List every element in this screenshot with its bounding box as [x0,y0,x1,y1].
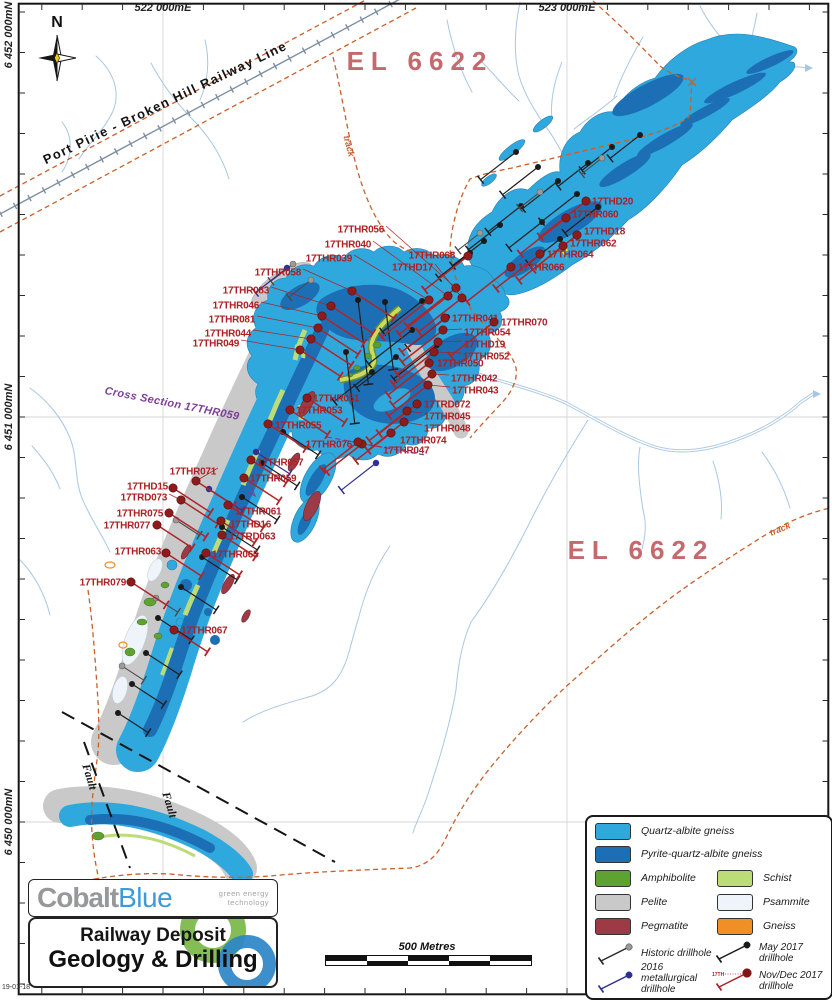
drillhole-label: 17THD15 [127,482,169,493]
novdec-drillhole-dot [348,287,356,295]
novdec-drillhole-dot [439,326,447,334]
legend-label-schist: Schist [763,873,792,885]
novdec-drillhole-trace-tick [325,430,330,438]
drillhole-label: 17THR051 [313,394,360,405]
drillhole-label: 17THR064 [547,250,594,261]
may2017-drillhole-dot [539,219,545,225]
legend-swatch-psammite [717,894,753,911]
may2017-drillhole-dot [155,615,161,621]
novdec-drillhole-dot [434,338,442,346]
may2017-drillhole-trace [357,357,396,388]
brand-tagline: green energy technology [219,889,269,908]
historic-drillhole-trace [176,520,199,535]
drillhole-label: 17THR059 [250,474,297,485]
novdec-drillhole-trace [331,306,373,333]
may2017-drillhole-trace [118,713,148,733]
may2017-drillhole-dot [574,191,580,197]
drillhole-leader [253,330,311,339]
legend-sym-dot [744,942,750,948]
met2016-drillhole-trace-tick [338,486,344,494]
drillhole-label: 17THR049 [193,339,240,350]
may2017-drillhole-trace-tick [607,154,613,162]
drillhole-leader [257,316,318,328]
drillhole-label: 17THR068 [409,251,456,262]
novdec-drillhole-trace-tick [190,544,195,552]
brand-blue: Blue [118,884,172,912]
novdec-drillhole-dot [582,197,590,205]
legend-symbol-historic-drillhole [593,941,637,967]
legend-sym-tick [599,958,604,965]
may2017-drillhole-dot [178,584,184,590]
novdec-drillhole-trace-tick [386,412,392,420]
may2017-drillhole-trace-tick [506,244,512,252]
drillhole-label: 17THD16 [230,520,272,531]
novdec-drillhole-dot [428,370,436,378]
may2017-drillhole-trace [488,206,521,232]
may2017-drillhole-trace-tick [363,384,373,385]
drillhole-label: 17THR054 [464,328,511,339]
novdec-drillhole-trace-tick [370,329,375,337]
novdec-drillhole-dot [177,496,185,504]
novdec-drillhole-dot [165,509,173,517]
drillhole-label: 17THR062 [570,239,617,250]
legend-label-pyrite: Pyrite-quartz-albite gneiss [641,849,762,861]
may2017-drillhole-dot [115,710,121,716]
may2017-drillhole-dot [585,160,591,166]
met2016-drillhole-dot [253,449,259,455]
drillhole-label: 17THR042 [451,374,498,385]
novdec-drillhole-dot [240,474,248,482]
drillhole-label: 17THR079 [80,578,127,589]
may2017-drillhole-dot [609,144,615,150]
may2017-drillhole-dot [481,238,487,244]
may2017-drillhole-dot [355,297,361,303]
may2017-drillhole-trace [146,653,180,675]
may2017-drillhole-dot [393,354,399,360]
may2017-drillhole-dot [637,132,643,138]
legend-sym-line [601,948,627,961]
novdec-drillhole-dot [202,549,210,557]
novdec-drillhole-dot [441,314,449,322]
north-arrow-label: N [48,14,66,32]
drillhole-leader [271,287,331,306]
legend-swatch-gneiss [717,918,753,935]
novdec-drillhole-dot [318,312,326,320]
may2017-drillhole-dot [129,681,135,687]
northing-label-6451000: 6 451 000mN [3,373,15,461]
novdec-drillhole-dot [490,318,498,326]
legend-swatch-pelite [595,894,631,911]
novdec-drillhole-dot [327,302,335,310]
novdec-drillhole-dot [170,626,178,634]
drillhole-label: 17THR060 [572,210,619,221]
historic-drillhole-trace [458,233,480,250]
tenement-label-south: EL 6622 [531,535,751,566]
may2017-drillhole-dot [513,149,519,155]
novdec-drillhole-trace-tick [516,277,522,285]
legend-label-may2017-drillhole: May 2017 drillhole [759,942,819,964]
northing-label-6452000: 6 452 000mN [3,0,15,79]
historic-drillhole-trace-tick [141,676,146,684]
date-stamp: 19-01-18 [2,984,30,991]
legend-label-novdec2017-drillhole: Nov/Dec 2017 drillhole [759,970,825,992]
may2017-drillhole-trace-tick [350,423,360,424]
legend-sym-tick [599,986,604,993]
novdec-drillhole-trace-tick [342,418,347,426]
may2017-drillhole-trace [481,152,516,180]
novdec-drillhole-dot [303,394,311,402]
may2017-drillhole-trace-tick [145,728,150,736]
drillhole-label: 17THR075 [117,509,164,520]
novdec-drillhole-dot [425,359,433,367]
novdec-drillhole-trace-tick [385,391,391,399]
novdec-drillhole-dot [264,420,272,428]
may2017-drillhole-trace-tick [161,701,166,709]
legend-sym-tick [717,984,722,991]
legend-label-historic-drillhole: Historic drillhole [641,948,713,959]
may2017-drillhole-dot [557,236,563,242]
may2017-drillhole-trace-tick [214,606,219,614]
drillhole-label: 17TRD073 [121,493,168,504]
legend-symbol-novdec2017-drillhole: 17TH [711,967,755,993]
legend-label-quartz-albite: Quartz-albite gneiss [641,826,734,838]
novdec-drillhole-trace-tick [164,601,169,609]
legend-label-2016-met-drillhole: 2016 metallurgical drillhole [641,962,705,995]
drillhole-label: 17THR066 [518,263,565,274]
novdec-drillhole-dot [562,214,570,222]
novdec-drillhole-dot [430,348,438,356]
may2017-drillhole-trace [509,222,542,248]
legend-sym-tag: 17TH [712,972,725,978]
legend-sym-line [719,946,745,959]
may2017-drillhole-dot [535,164,541,170]
historic-drillhole-dot [290,261,296,267]
drillhole-label: 17THR047 [383,446,430,457]
drillhole-label: 17THR055 [275,421,322,432]
novdec-drillhole-dot [217,517,225,525]
novdec-drillhole-dot [507,263,515,271]
historic-drillhole-dot [119,663,125,669]
may2017-drillhole-trace-tick [499,191,505,199]
drillhole-label: 17THR039 [306,254,353,265]
map-stage: 17THR05617THR04017THR03917THR05817THR083… [0,0,832,1004]
novdec-drillhole-dot [400,418,408,426]
drillhole-label: 17THR061 [235,507,282,518]
novdec-drillhole-dot [536,250,544,258]
may2017-drillhole-dot [382,299,388,305]
may2017-drillhole-trace-tick [388,369,398,370]
drillhole-label: 17THR048 [424,424,471,435]
novdec-drillhole-trace [393,352,434,384]
novdec-drillhole-trace-tick [352,457,358,465]
may2017-drillhole-trace-tick [316,451,321,459]
legend-drillhole-symbol-icon [593,941,637,967]
legend-drillhole-symbol-icon: 17TH [711,967,755,993]
drillhole-label: 17THR083 [223,286,270,297]
drillhole-label: 17THR077 [104,521,151,532]
novdec-drillhole-trace-tick [203,533,208,541]
may2017-drillhole-dot [239,494,245,500]
legend-swatch-pyrite [595,846,631,863]
may2017-drillhole-trace-tick [177,671,182,679]
may2017-drillhole-trace [558,163,588,186]
novdec-drillhole-trace-tick [277,497,282,505]
novdec-drillhole-dot [247,456,255,464]
legend-swatch-pegmatite [595,918,631,935]
historic-drillhole-dot [477,230,483,236]
novdec-drillhole-dot [464,252,472,260]
drillhole-leader [261,302,322,316]
logo-box: CobaltBlue green energy technology [28,879,278,917]
map-title-line1: Railway Deposit [30,925,276,947]
easting-label-523000: 523 000mE [525,2,609,14]
novdec-drillhole-dot [424,381,432,389]
drillhole-label: 17THD19 [464,340,506,351]
legend-sym-line [601,976,627,989]
novdec-drillhole-trace [397,342,438,374]
legend-swatch-amphibolite [595,870,631,887]
drillhole-label: 17THR043 [452,386,499,397]
historic-drillhole-trace [122,666,144,680]
novdec-drillhole-dot [458,294,466,302]
may2017-drillhole-trace-tick [562,229,568,237]
novdec-drillhole-dot [169,484,177,492]
novdec-drillhole-dot [354,438,362,446]
drillhole-label: 17THR040 [325,240,372,251]
drillhole-label: 17THR053 [296,406,343,417]
novdec-drillhole-trace-tick [349,361,354,369]
historic-drillhole-trace [520,192,540,208]
novdec-drillhole-trace-tick [416,328,422,336]
legend-drillhole-symbol-icon [593,969,637,995]
northing-label-6450000: 6 450 000mN [3,778,15,866]
title-box: Railway Deposit Geology & Drilling [28,917,278,988]
met2016-drillhole-dot [373,460,379,466]
historic-drillhole-dot [308,277,314,283]
novdec-drillhole-trace-tick [366,437,372,445]
drillhole-label: 17THD17 [392,263,434,274]
legend-symbol-2016-met-drillhole [593,969,637,995]
may2017-drillhole-trace-tick [477,176,483,184]
legend-drillhole-symbol-icon [711,939,755,965]
met2016-drillhole-trace [341,463,376,490]
novdec-drillhole-dot [413,400,421,408]
drillhole-label: 17THD20 [592,197,634,208]
novdec-drillhole-trace [467,267,511,301]
legend-label-psammite: Psammite [763,897,810,909]
novdec-drillhole-trace [382,300,429,337]
legend-label-gneiss: Gneiss [763,921,796,933]
novdec-drillhole-trace-tick [205,648,210,656]
legend-label-pegmatite: Pegmatite [641,921,688,933]
novdec-drillhole-trace-tick [399,348,405,356]
drillhole-label: 17TRD072 [424,400,471,411]
novdec-drillhole-dot [153,521,161,529]
novdec-drillhole-trace [166,553,201,576]
may2017-drillhole-dot [143,650,149,656]
drillhole-label: 17THR057 [257,458,304,469]
legend-swatch-schist [717,870,753,887]
novdec-drillhole-trace [131,582,166,605]
drillhole-label: 17THR056 [338,225,385,236]
scale-bar [325,955,532,966]
drillhole-leader [241,340,300,350]
legend: Quartz-albite gneiss Pyrite-quartz-albit… [585,815,832,1000]
novdec-drillhole-dot [224,501,232,509]
drillhole-label: 17THR045 [424,412,471,423]
drillhole-label: 17THR081 [209,315,256,326]
legend-swatch-quartz-albite [595,823,631,840]
novdec-drillhole-dot [307,335,315,343]
legend-sym-tick [717,956,722,963]
novdec-drillhole-dot [403,407,411,415]
may2017-drillhole-trace [383,301,422,332]
legend-sym-dot [626,972,632,978]
novdec-drillhole-dot [218,531,226,539]
historic-drillhole-trace-tick [175,608,180,616]
drillhole-label: 17THR067 [181,626,228,637]
legend-sym-dot [626,944,632,950]
may2017-drillhole-dot [343,349,349,355]
may2017-drillhole-dot [369,369,375,375]
novdec-drillhole-dot [444,292,452,300]
legend-sym-dot [743,969,752,978]
legend-label-pelite: Pelite [641,897,667,909]
novdec-drillhole-trace-tick [493,285,499,293]
may2017-drillhole-trace [468,225,500,250]
drillhole-label: 17THR065 [212,550,259,561]
may2017-drillhole-trace [181,587,216,610]
drillhole-label: 17THR058 [255,268,302,279]
novdec-drillhole-dot [425,296,433,304]
novdec-drillhole-trace-tick [208,508,213,516]
drillhole-label: 17THD18 [584,227,626,238]
historic-drillhole-trace-tick [455,246,461,254]
novdec-drillhole-trace-tick [390,401,396,409]
novdec-drillhole-trace [181,500,218,524]
novdec-drillhole-trace-tick [356,350,361,358]
novdec-drillhole-trace-tick [399,358,405,366]
novdec-drillhole-trace-tick [396,330,402,338]
scale-bar-row-bottom [326,961,531,966]
novdec-drillhole-trace [169,513,206,537]
drillhole-label: 17THR046 [213,301,260,312]
drillhole-label: 17THR076 [306,440,353,451]
novdec-drillhole-dot [314,324,322,332]
map-title-line2: Geology & Drilling [30,947,276,973]
novdec-drillhole-dot [387,429,395,437]
novdec-drillhole-trace [322,316,364,343]
novdec-drillhole-dot [162,549,170,557]
novdec-drillhole-trace [157,525,192,548]
scale-bar-label: 500 Metres [347,941,507,953]
historic-drillhole-trace [289,280,311,297]
legend-label-amphibolite: Amphibolite [641,873,696,885]
novdec-drillhole-dot [192,477,200,485]
drillhole-label: 17THR071 [170,467,217,478]
legend-symbol-may2017-drillhole [711,939,755,965]
novdec-drillhole-dot [127,578,135,586]
historic-drillhole-dot [599,155,605,161]
novdec-drillhole-trace [318,328,358,354]
may2017-drillhole-trace [582,147,612,170]
historic-drillhole-dot [537,189,543,195]
may2017-drillhole-trace [132,684,164,705]
drillhole-label: 17THR050 [437,359,484,370]
historic-drillhole-trace-tick [286,293,292,301]
tenement-label-north: EL 6622 [310,46,530,77]
novdec-drillhole-trace-tick [237,571,242,579]
novdec-drillhole-dot [296,346,304,354]
may2017-drillhole-dot [497,222,503,228]
novdec-drillhole-trace-tick [517,250,523,258]
novdec-drillhole-dot [286,406,294,414]
easting-label-522000: 522 000mE [121,2,205,14]
novdec-drillhole-trace-tick [422,286,428,294]
novdec-drillhole-trace-tick [338,372,343,380]
may2017-drillhole-trace [503,167,538,195]
drillhole-label: 17THR063 [115,547,162,558]
novdec-drillhole-trace-tick [199,572,204,580]
drillhole-label: 17TRD063 [229,532,276,543]
brand-cobalt: Cobalt [37,884,118,912]
